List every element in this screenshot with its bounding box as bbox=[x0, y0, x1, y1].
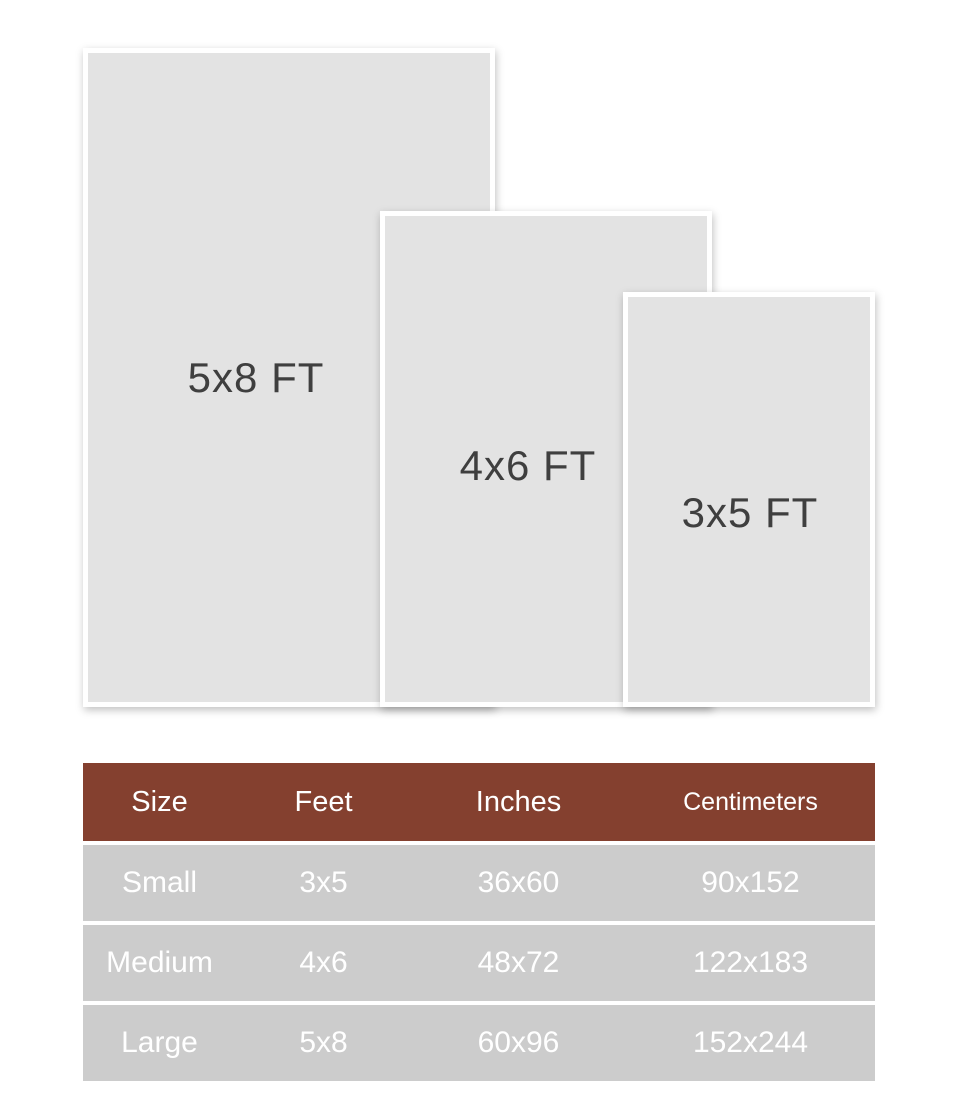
table-header-row: Size Feet Inches Centimeters bbox=[83, 763, 875, 841]
cell-medium-feet: 4x6 bbox=[236, 946, 411, 980]
size-chart-page: 5x8 FT 4x6 FT 3x5 FT Size Feet Inches Ce… bbox=[0, 0, 960, 1120]
cell-large-feet: 5x8 bbox=[236, 1026, 411, 1060]
column-header-inches: Inches bbox=[411, 786, 626, 819]
table-row-medium: Medium 4x6 48x72 122x183 bbox=[83, 925, 875, 1001]
size-card-3x5: 3x5 FT bbox=[623, 292, 875, 707]
cell-medium-size: Medium bbox=[83, 946, 236, 980]
cell-large-size: Large bbox=[83, 1026, 236, 1060]
table-row-large: Large 5x8 60x96 152x244 bbox=[83, 1005, 875, 1081]
size-card-5x8-label: 5x8 FT bbox=[188, 354, 325, 402]
column-header-feet: Feet bbox=[236, 786, 411, 819]
table-row-small: Small 3x5 36x60 90x152 bbox=[83, 845, 875, 921]
cell-small-size: Small bbox=[83, 866, 236, 900]
cell-large-inches: 60x96 bbox=[411, 1026, 626, 1060]
size-conversion-table: Size Feet Inches Centimeters Small 3x5 3… bbox=[83, 763, 875, 1081]
cell-large-centimeters: 152x244 bbox=[626, 1026, 875, 1060]
cell-medium-centimeters: 122x183 bbox=[626, 946, 875, 980]
size-card-4x6-label: 4x6 FT bbox=[460, 442, 597, 490]
cell-small-feet: 3x5 bbox=[236, 866, 411, 900]
cell-small-inches: 36x60 bbox=[411, 866, 626, 900]
column-header-centimeters: Centimeters bbox=[626, 788, 875, 817]
size-card-3x5-label: 3x5 FT bbox=[682, 489, 819, 537]
cell-medium-inches: 48x72 bbox=[411, 946, 626, 980]
cell-small-centimeters: 90x152 bbox=[626, 866, 875, 900]
column-header-size: Size bbox=[83, 786, 236, 819]
